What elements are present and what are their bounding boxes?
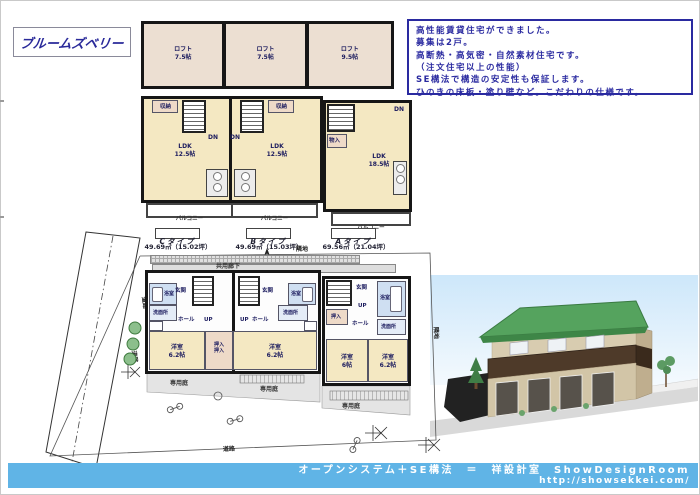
closet-label: 押入 [331,315,341,321]
bathroom: 浴室 [377,281,406,317]
room-label: ロフト 7.5帖 [226,46,304,61]
room-name: ロフト [309,46,391,54]
bath-label: 浴室 [164,292,174,298]
stairs-down-label: DN [230,135,240,142]
neighbor-label: 隣地 [432,327,440,339]
tree-icon [129,322,141,334]
room-size: 6.2帖 [369,362,407,370]
window [510,341,528,355]
loft-floor-plan: ロフト 7.5帖 ロフト 7.5帖 ロフト 9.5帖 [141,21,394,89]
room-name: ロフト [144,46,222,54]
door-window [528,378,550,413]
bush-icon [583,403,589,409]
storage-closet: 収納 [268,100,294,113]
garden-label: 専用庭 [170,379,188,387]
trunk [475,383,478,389]
entrance-label: 玄関 [356,285,367,291]
bicycle-icon [166,402,183,413]
info-line: （注文住宅以上の性能） [416,62,684,74]
burner-icon [213,183,222,192]
burner-icon [241,183,250,192]
kitchen-stove [393,161,407,195]
door-window [560,375,582,410]
ldk-name: LDK [354,153,404,161]
plant-icon [418,437,440,453]
staircase [192,276,214,306]
burner-icon [241,172,250,181]
tree-icon [127,338,139,350]
window [586,335,604,349]
bedroom-b: 洋室 6.2帖 [233,331,317,370]
burner-icon [396,175,405,184]
toilet [304,321,317,331]
door-window [592,372,614,407]
description-box: 高性能賃貸住宅ができました。 募集は2戸。 高断熱・高気密・自然素材住宅です。 … [407,19,693,95]
tree-icon [663,366,671,374]
info-line: ひのきの床板・塗り壁など。こだわりの仕様です。 [416,87,684,99]
neighbor-label: 隣地 [296,245,308,253]
staircase [327,104,355,132]
washroom-label: 洗面所 [283,311,298,317]
closets: 押入 押入 [205,331,233,370]
garden-a [322,386,410,415]
burner-icon [213,172,222,181]
room-size: 9.5帖 [309,54,391,62]
footer-system-label: オープンシステム＋SE構法 ＝ 祥設計室 ShowDesignRoom [8,465,690,476]
door-window [496,381,518,416]
garden-label: 専用庭 [342,402,360,410]
room-size: 6帖 [327,362,367,370]
hall-label: ホール [252,317,269,323]
staircase [182,100,206,133]
closet-label: 押入 [206,348,232,354]
room-size: 6.2帖 [234,352,316,360]
info-line: 高断熱・高気密・自然素材住宅です。 [416,50,684,62]
window [548,338,566,352]
bicycle-icon [226,415,243,425]
room-label: ロフト 7.5帖 [144,46,222,61]
page-title: ブルームズベリー [19,33,125,52]
ldk-label: LDK 12.5帖 [150,143,220,158]
loft-room-a: ロフト 9.5帖 [309,24,391,86]
room-label: 洋室 6.2帖 [150,344,204,359]
storage-label: 収納 [276,104,287,110]
bath-label: 浴室 [291,292,301,298]
stairs-up-label: UP [204,317,213,323]
room-size: 7.5帖 [226,54,304,62]
plan-sheet: ブルームズベリー ロフト 7.5帖 ロフト 7.5帖 ロフト 9.5帖 高性能賃… [0,0,700,495]
room-size: 6.2帖 [150,352,204,360]
bathtub-icon [390,286,402,312]
info-line: 募集は2戸。 [416,37,684,49]
floor2-plan-cb: 収納 収納 DN DN LDK 12.5帖 LDK 12.5帖 [141,96,323,203]
deck-strip [330,391,408,400]
tree-icon [124,353,136,365]
party-wall [229,99,232,200]
bath-label: 浴室 [380,296,390,302]
plant-icon [365,425,387,441]
washroom-label: 洗面所 [381,325,396,331]
info-line: SE構法で構造の安定性も保証します。 [416,74,684,86]
loft-room-b: ロフト 7.5帖 [226,24,308,86]
bush-icon [551,406,557,412]
bathroom: 浴室 [149,283,177,305]
bedroom-c: 洋室 6.2帖 [149,331,205,370]
hall-label: ホール [352,321,369,327]
corridor-label: 共用廊下 [216,264,240,271]
ldk-size: 12.5帖 [150,151,220,159]
tree-icon [665,356,675,366]
storage-label: 収納 [160,104,171,110]
closet-labels: 押入 押入 [206,342,232,355]
room-label: ロフト 9.5帖 [309,46,391,61]
ldk-name: LDK [150,143,220,151]
washroom: 洗面所 [278,305,308,321]
footer-bar: オープンシステム＋SE構法 ＝ 祥設計室 ShowDesignRoom http… [8,463,698,488]
hall-label: ホール [178,317,195,323]
toilet [149,321,163,331]
washroom: 洗面所 [149,305,177,321]
staircase [326,280,352,306]
ldk-name: LDK [242,143,312,151]
room-label: 洋室 6.2帖 [369,354,407,369]
washroom-label: 洗面所 [153,311,168,317]
washroom: 洗面所 [377,319,406,335]
floor1-plan-a: 玄関 UP 押入 ホール 浴室 洗面所 洋室 6帖 洋室 6.2帖 [322,276,411,386]
room-name: ロフト [226,46,304,54]
bicycle-icons [166,402,361,453]
room-label: 洋室 6帖 [327,354,367,369]
room-name: 洋室 [327,354,367,362]
burner-icon [396,164,405,173]
bathtub-icon [302,287,313,302]
entrance-label: 玄関 [175,288,186,294]
staircase [238,276,260,306]
room-label: 洋室 6.2帖 [234,344,316,359]
bathtub-icon [152,287,163,302]
info-line: 高性能賃貸住宅ができました。 [416,25,684,37]
bathroom: 浴室 [288,283,316,305]
loft-room-c: ロフト 7.5帖 [144,24,226,86]
ldk-size: 12.5帖 [242,151,312,159]
room-name: 洋室 [369,354,407,362]
edge-mark [0,216,4,218]
storage-closet: 収納 [152,100,178,113]
floor1-plan-cb: 浴室 洗面所 玄関 ホール UP 洋室 6.2帖 押入 押入 玄関 UP ホール [145,270,321,374]
edge-mark [0,100,4,102]
entrance-label: 玄関 [262,288,273,294]
stairs-down-label: DN [394,107,404,114]
ldk-label: LDK 12.5帖 [242,143,312,158]
room-name: 洋室 [150,344,204,352]
garden-label: 専用庭 [260,385,278,393]
footer-url: http://showsekkei.com/ [8,476,690,487]
room-size: 7.5帖 [144,54,222,62]
stairs-up-label: UP [240,317,249,323]
bicycle-icon [349,436,361,453]
title-box: ブルームズベリー [13,27,131,57]
stairs-down-label: DN [208,135,218,142]
road-label: 道路 [223,445,236,453]
bush-icon [519,410,525,416]
setback-hatch [150,255,360,264]
bedroom-a1: 洋室 6帖 [326,339,368,382]
balcony-side [636,345,652,369]
closet-label: 物入 [329,138,340,144]
closet: 押入 [326,309,348,325]
bedroom-a2: 洋室 6.2帖 [368,339,408,382]
staircase [240,100,264,133]
stairs-up-label: UP [358,303,367,309]
deck-strip [240,375,304,383]
room-name: 洋室 [234,344,316,352]
plant-icon [121,365,140,379]
